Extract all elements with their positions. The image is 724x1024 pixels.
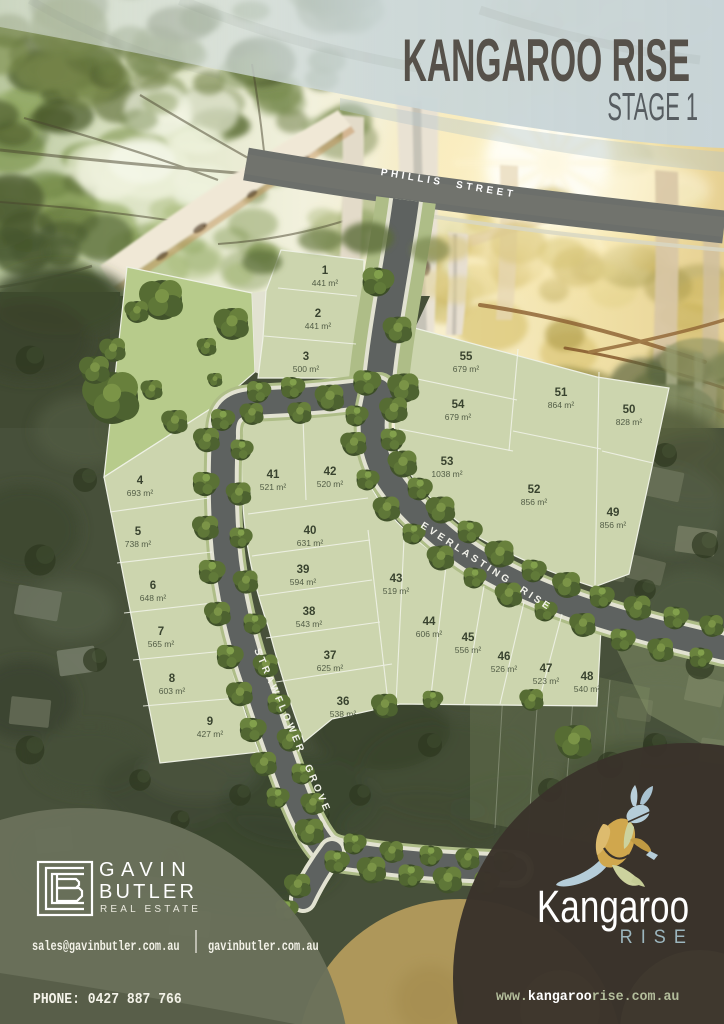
- svg-text:38: 38: [303, 606, 316, 618]
- svg-text:2: 2: [315, 308, 321, 320]
- svg-text:PHONE: 0427 887 766: PHONE: 0427 887 766: [33, 991, 182, 1008]
- svg-text:540 m²: 540 m²: [574, 684, 601, 694]
- svg-text:441 m²: 441 m²: [312, 278, 339, 288]
- svg-text:631 m²: 631 m²: [297, 538, 324, 548]
- svg-text:53: 53: [441, 456, 454, 468]
- svg-text:www.kangaroorise.com.au: www.kangaroorise.com.au: [496, 990, 679, 1005]
- svg-text:48: 48: [581, 671, 594, 683]
- svg-text:40: 40: [304, 525, 317, 537]
- svg-text:50: 50: [623, 404, 636, 416]
- svg-text:526 m²: 526 m²: [491, 664, 518, 674]
- svg-text:538 m²: 538 m²: [330, 709, 357, 719]
- svg-text:REAL ESTATE: REAL ESTATE: [100, 904, 201, 915]
- svg-text:41: 41: [267, 469, 280, 481]
- svg-text:625 m²: 625 m²: [317, 663, 344, 673]
- svg-text:GAVIN: GAVIN: [99, 859, 192, 881]
- svg-text:521 m²: 521 m²: [260, 482, 287, 492]
- svg-text:42: 42: [324, 466, 337, 478]
- svg-text:47: 47: [540, 663, 553, 675]
- svg-text:500 m²: 500 m²: [293, 364, 320, 374]
- svg-text:55: 55: [460, 351, 473, 363]
- svg-text:7: 7: [158, 626, 164, 638]
- svg-text:828 m²: 828 m²: [616, 417, 643, 427]
- svg-text:693 m²: 693 m²: [127, 488, 154, 498]
- svg-text:sales@gavinbutler.com.au: sales@gavinbutler.com.au: [32, 939, 180, 955]
- svg-text:45: 45: [462, 632, 475, 644]
- svg-text:51: 51: [555, 387, 568, 399]
- svg-text:864 m²: 864 m²: [548, 400, 575, 410]
- svg-text:49: 49: [607, 507, 620, 519]
- svg-text:603 m²: 603 m²: [159, 686, 186, 696]
- svg-text:594 m²: 594 m²: [290, 577, 317, 587]
- svg-text:556 m²: 556 m²: [455, 645, 482, 655]
- svg-text:5: 5: [135, 526, 142, 538]
- svg-text:RISE: RISE: [620, 926, 694, 948]
- svg-text:519 m²: 519 m²: [383, 586, 410, 596]
- svg-text:BUTLER: BUTLER: [99, 881, 197, 903]
- svg-text:856 m²: 856 m²: [521, 497, 548, 507]
- svg-text:36: 36: [337, 696, 350, 708]
- svg-text:STAGE 1: STAGE 1: [607, 84, 698, 128]
- svg-text:43: 43: [390, 573, 403, 585]
- svg-text:6: 6: [150, 580, 156, 592]
- svg-text:4: 4: [137, 475, 144, 487]
- svg-text:44: 44: [423, 616, 436, 628]
- svg-text:1: 1: [322, 265, 329, 277]
- svg-text:54: 54: [452, 399, 465, 411]
- svg-text:679 m²: 679 m²: [453, 364, 480, 374]
- svg-text:3: 3: [303, 351, 309, 363]
- svg-text:606 m²: 606 m²: [416, 629, 443, 639]
- svg-text:37: 37: [324, 650, 337, 662]
- svg-text:427 m²: 427 m²: [197, 729, 224, 739]
- svg-text:565 m²: 565 m²: [148, 639, 175, 649]
- svg-text:520 m²: 520 m²: [317, 479, 344, 489]
- svg-text:523 m²: 523 m²: [533, 676, 560, 686]
- svg-text:441 m²: 441 m²: [305, 321, 332, 331]
- svg-text:9: 9: [207, 716, 213, 728]
- svg-text:648 m²: 648 m²: [140, 593, 167, 603]
- svg-text:738 m²: 738 m²: [125, 539, 152, 549]
- svg-text:46: 46: [498, 651, 511, 663]
- svg-text:543 m²: 543 m²: [296, 619, 323, 629]
- svg-text:679 m²: 679 m²: [445, 412, 472, 422]
- svg-text:Kangaroo: Kangaroo: [537, 881, 689, 932]
- svg-text:52: 52: [528, 484, 541, 496]
- svg-text:39: 39: [297, 564, 310, 576]
- svg-text:8: 8: [169, 673, 176, 685]
- svg-text:1038 m²: 1038 m²: [431, 469, 462, 479]
- svg-text:gavinbutler.com.au: gavinbutler.com.au: [208, 939, 319, 955]
- svg-text:856 m²: 856 m²: [600, 520, 627, 530]
